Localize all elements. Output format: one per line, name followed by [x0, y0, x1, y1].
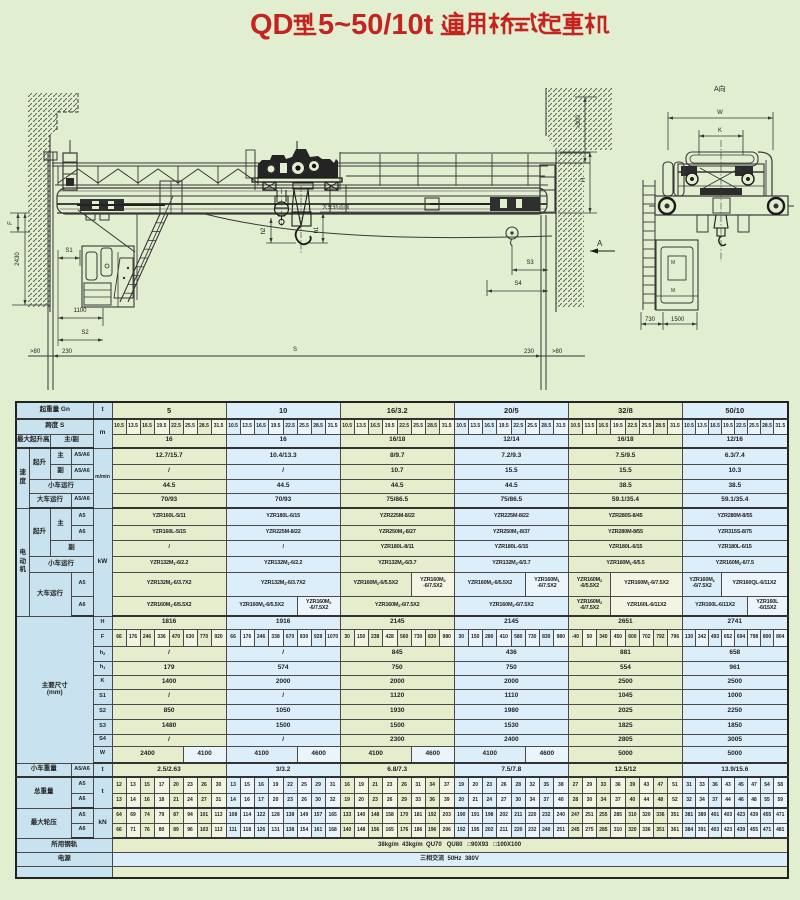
svg-text:S: S [293, 347, 297, 353]
svg-text:QD: QD [250, 9, 294, 41]
svg-text:F: F [8, 221, 14, 225]
svg-text:>300: >300 [576, 115, 582, 129]
svg-text:S1: S1 [65, 248, 73, 254]
svg-text:230: 230 [524, 349, 535, 355]
svg-text:S4: S4 [514, 281, 522, 287]
svg-text:大车轨道面: 大车轨道面 [322, 203, 350, 211]
svg-text:A: A [597, 239, 603, 248]
svg-text:>80: >80 [30, 349, 41, 355]
svg-text:730: 730 [645, 317, 656, 323]
svg-text:2430: 2430 [15, 252, 21, 266]
svg-text:S3: S3 [526, 260, 534, 266]
svg-text:H: H [581, 178, 587, 182]
svg-text:M: M [671, 288, 675, 294]
svg-text:1500: 1500 [671, 317, 685, 323]
svg-text:230: 230 [62, 349, 73, 355]
svg-text:1100: 1100 [74, 308, 88, 314]
svg-text:h2: h2 [261, 227, 267, 234]
svg-text:A向: A向 [714, 84, 726, 93]
svg-text:S2: S2 [81, 330, 89, 336]
svg-text:M: M [671, 260, 675, 266]
svg-text:5~50/10t: 5~50/10t [318, 9, 434, 41]
svg-text:W: W [717, 110, 723, 116]
svg-text:K: K [718, 128, 722, 134]
svg-text:>80: >80 [552, 349, 563, 355]
